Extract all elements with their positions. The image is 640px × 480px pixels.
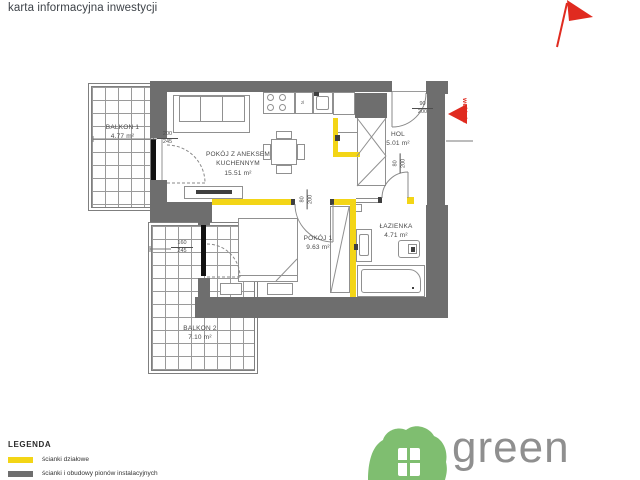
- green-estates-logo: green estates: [368, 424, 640, 480]
- sink-tap: [314, 92, 319, 96]
- room-area: 5.01 m²: [376, 139, 420, 148]
- legend-title: LEGENDA: [8, 440, 158, 449]
- stove-burner: [279, 104, 286, 111]
- partition-pokoj1-top-right: [333, 199, 351, 205]
- door-jamb-pokoj1-right: [330, 199, 334, 205]
- dim-width: 90: [412, 101, 433, 109]
- door-jamb-pokoj1-left: [291, 199, 295, 205]
- partition-lazienka-door-stub: [407, 197, 414, 204]
- room-area: 4.77 m²: [95, 132, 150, 141]
- balkon1-tile-grid: [91, 86, 151, 208]
- flag-pole: [557, 3, 567, 47]
- logo-word-estates: estates: [455, 473, 604, 480]
- dim-height: 200: [401, 153, 408, 173]
- balkon2-door-panel: [201, 225, 206, 276]
- page-title: karta informacyjna inwestycji: [8, 2, 157, 14]
- room-area: 9.63 m²: [292, 243, 344, 252]
- bed: [238, 218, 298, 282]
- floorplan-page: karta informacyjna inwestycji zl: [0, 0, 640, 480]
- room-area: 7.10 m²: [170, 333, 230, 342]
- sofa-seat: [179, 96, 245, 122]
- room-label-balkon2: BALKON 2 7.10 m²: [170, 324, 230, 343]
- sofa-cushion-divider: [222, 96, 223, 122]
- dim-height: 245: [171, 248, 193, 255]
- room-label-lazienka: ŁAZIENKA 4.71 m²: [368, 222, 424, 241]
- nightstand: [267, 283, 293, 295]
- room-area: 15.51 m²: [189, 169, 287, 178]
- sofa-cushion-divider: [200, 96, 201, 122]
- dim-height: 200: [412, 109, 433, 116]
- dim-width: 160: [171, 240, 193, 248]
- room-name: KUCHENNYM: [189, 159, 287, 168]
- room-name: BALKON 1: [95, 123, 150, 132]
- bathtub-inner: [361, 269, 421, 293]
- dim-width: 80: [393, 153, 401, 173]
- dim-pokoj1-door: 80 200: [300, 189, 315, 209]
- chair: [276, 131, 292, 139]
- balkon1-floor: [88, 83, 154, 211]
- stove-burner: [267, 104, 274, 111]
- kitchen-unit-label: zl: [301, 100, 304, 105]
- dim-balkon2-window: 160 245: [171, 240, 193, 255]
- stove-burner: [279, 94, 286, 101]
- wall-shaft-chunk: [355, 93, 387, 118]
- legend-item-partition-walls: ścianki działowe: [8, 456, 158, 463]
- wall-bottom: [195, 297, 448, 318]
- door-jamb-lazienka: [378, 197, 382, 203]
- tv-screen: [196, 190, 232, 194]
- flag-icon: [567, 0, 593, 21]
- room-name: POKÓJ 1: [292, 234, 344, 243]
- wall-left-upper: [150, 81, 167, 138]
- entrance-threshold-line: [392, 91, 426, 92]
- room-label-balkon1: BALKON 1 4.77 m²: [95, 123, 150, 142]
- bed-headboard-line: [238, 275, 298, 276]
- wardrobe-hol: [357, 117, 386, 186]
- logo-tree-icon: [368, 424, 458, 480]
- stove-burner: [267, 94, 274, 101]
- dim-width: 80: [300, 189, 308, 209]
- room-label-hol: HOL 5.01 m²: [376, 130, 420, 149]
- dim-entrance-door: 90 200: [412, 101, 433, 116]
- legend: LEGENDA ścianki działowe ścianki i obudo…: [8, 440, 158, 477]
- room-name: POKÓJ Z ANEKSEM: [189, 150, 287, 159]
- legend-label: ścianki działowe: [42, 456, 89, 463]
- dim-width: 200: [157, 131, 178, 139]
- partition-kitchen-horizontal: [333, 152, 360, 157]
- wall-midleft-chunk: [150, 202, 212, 222]
- dim-lazienka-door: 80 200: [393, 153, 408, 173]
- legend-label: ścianki i obudowy pionów instalacyjnych: [42, 470, 158, 477]
- toilet-detail: [411, 247, 415, 252]
- kitchen-sink-basin: [316, 96, 329, 110]
- nightstand: [220, 283, 242, 295]
- cabinet-handle: [335, 135, 340, 141]
- wall-top-main: [150, 81, 392, 92]
- room-name: ŁAZIENKA: [368, 222, 424, 231]
- legend-swatch-yellow: [8, 457, 33, 463]
- legend-swatch-gray: [8, 471, 33, 477]
- balkon1-door-panel: [151, 139, 156, 180]
- washbasin-tap: [354, 244, 358, 250]
- dim-height: 200: [308, 189, 315, 209]
- room-name: HOL: [376, 130, 420, 139]
- room-label-pokoj1: POKÓJ 1 9.63 m²: [292, 234, 344, 253]
- room-area: 4.71 m²: [368, 231, 424, 240]
- kitchen-counter-corner: [333, 92, 355, 115]
- chair: [297, 144, 305, 160]
- partition-pokoj1-lazienka: [350, 199, 356, 310]
- room-label-salon: POKÓJ Z ANEKSEM KUCHENNYM 15.51 m²: [189, 150, 287, 178]
- dim-height: 245: [157, 139, 178, 146]
- partition-pokoj1-top-left: [212, 199, 295, 205]
- dim-balkon1-window: 200 245: [157, 131, 178, 146]
- wall-pokoj1-left-lower: [198, 278, 210, 310]
- bathtub-drain: [412, 287, 414, 289]
- entrance-label: wejście: [461, 98, 468, 138]
- room-name: BALKON 2: [170, 324, 230, 333]
- logo-word-green: green: [452, 426, 570, 470]
- legend-item-installation-walls: ścianki i obudowy pionów instalacyjnych: [8, 470, 158, 477]
